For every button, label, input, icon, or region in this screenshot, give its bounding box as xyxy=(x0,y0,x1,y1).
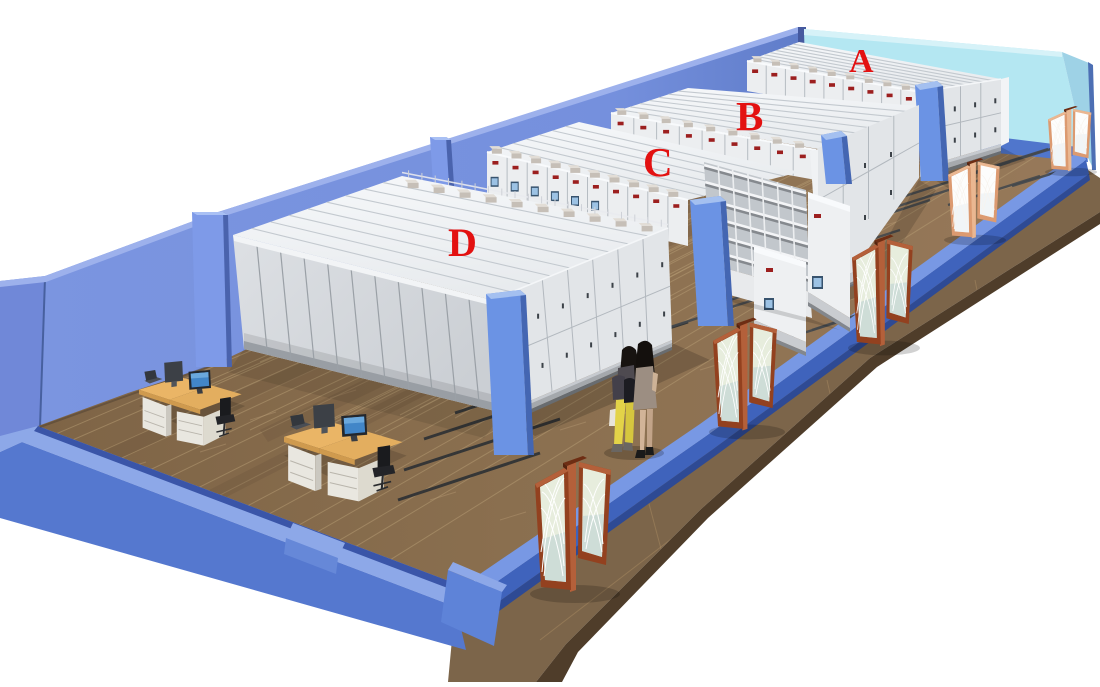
svg-text:C: C xyxy=(643,139,673,185)
svg-text:A: A xyxy=(849,43,874,80)
svg-text:B: B xyxy=(736,93,763,139)
svg-text:D: D xyxy=(448,220,477,265)
